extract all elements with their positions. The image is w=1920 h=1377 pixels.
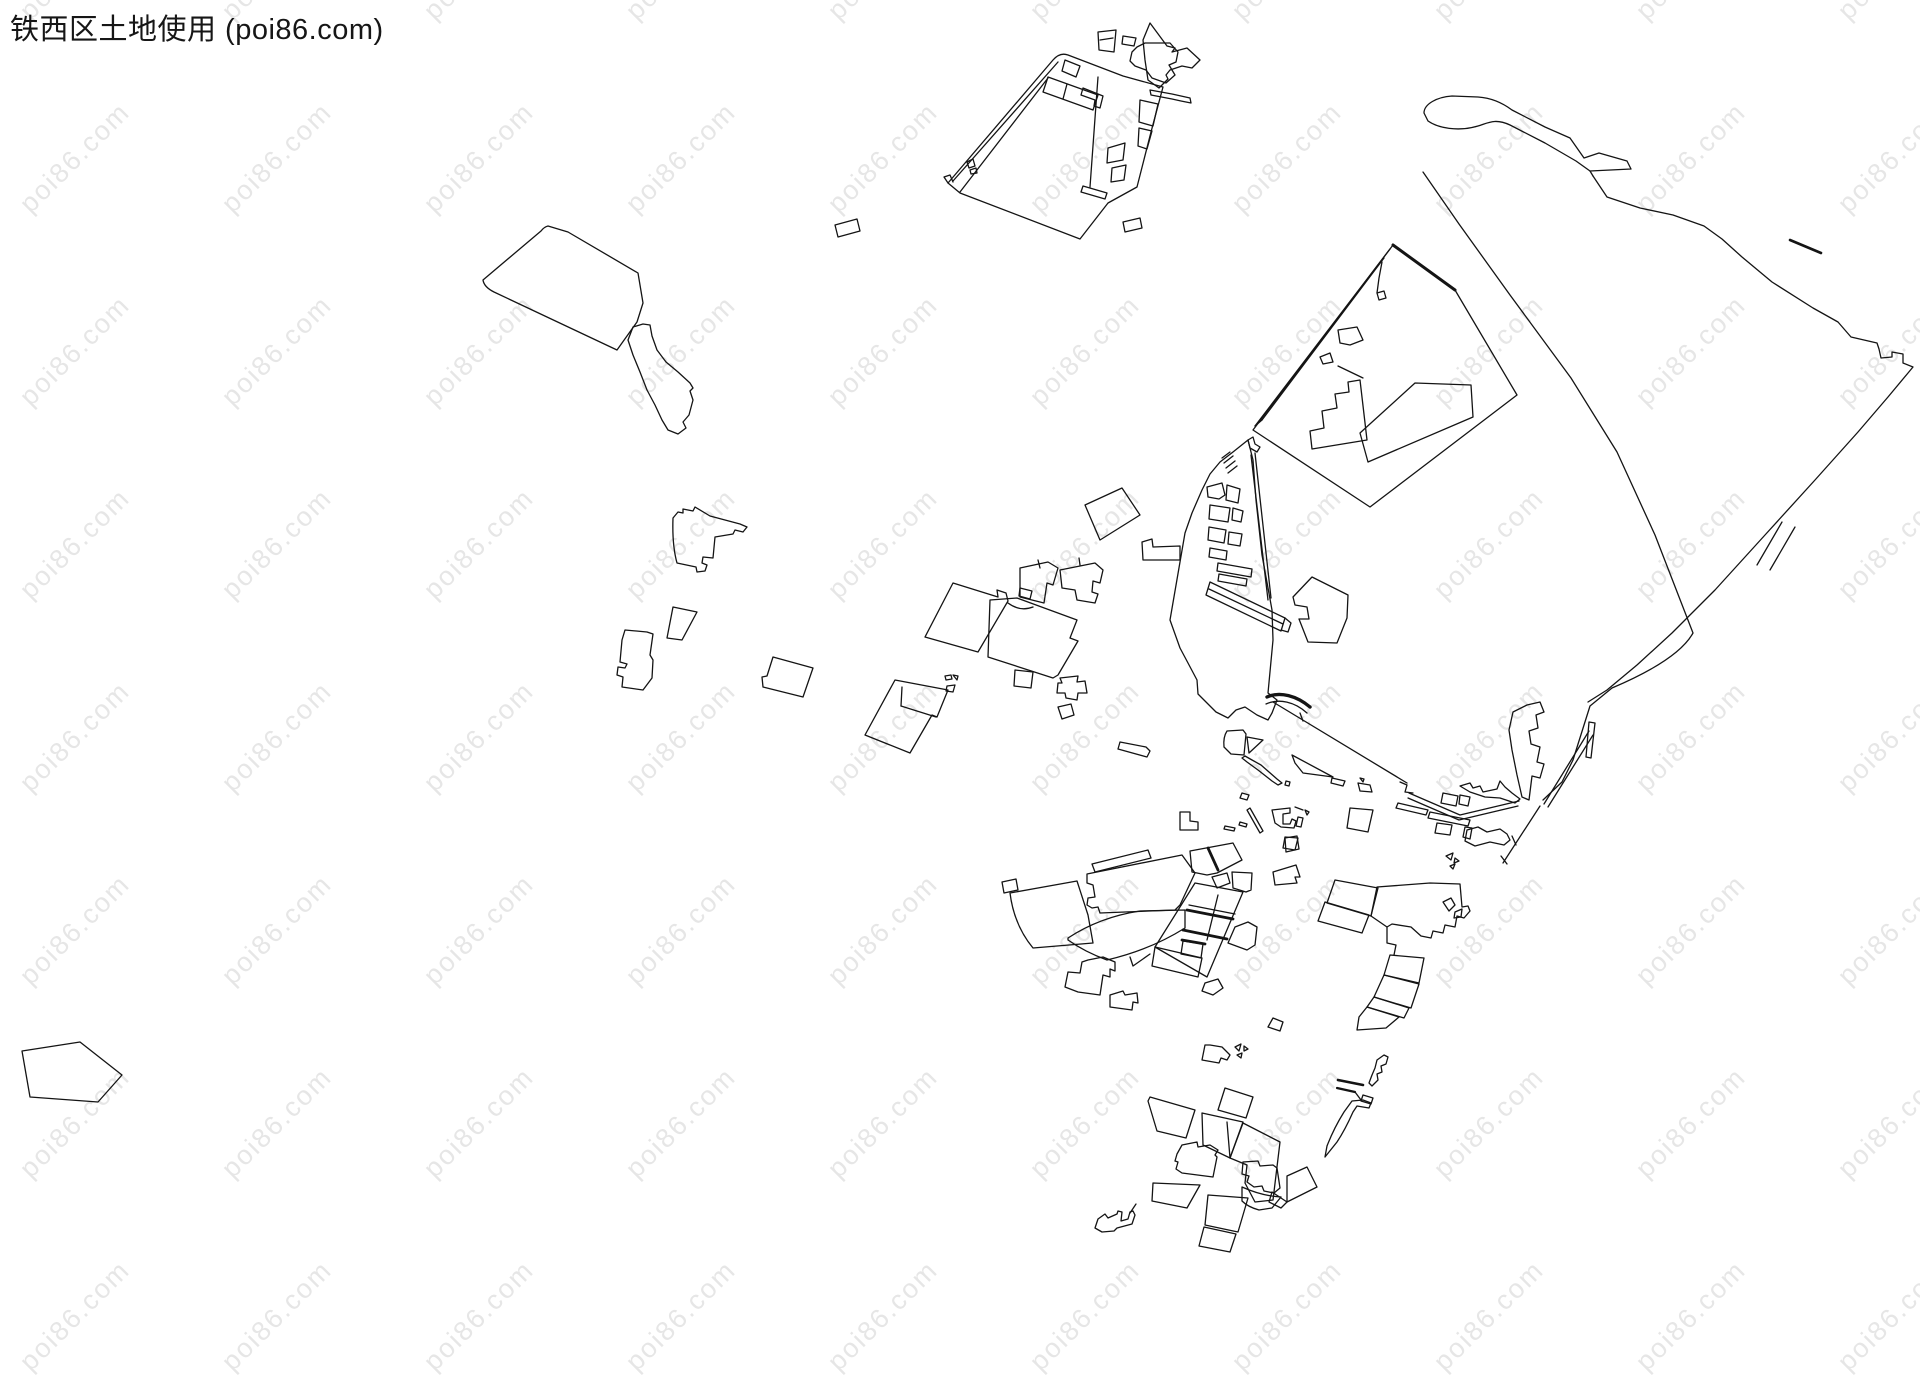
mid-cluster-slash bbox=[1295, 807, 1303, 810]
central-dark-band bbox=[1267, 694, 1310, 707]
region-neck bbox=[1590, 171, 1593, 176]
right-slash-1 bbox=[1757, 522, 1782, 565]
bl-small-diamond bbox=[1268, 1018, 1283, 1031]
rc-connector bbox=[1387, 927, 1396, 955]
center-top-quad-2 bbox=[1060, 563, 1103, 603]
central-room-d bbox=[1232, 508, 1243, 522]
small-quad-left bbox=[835, 219, 860, 237]
bl-pentagon bbox=[1228, 922, 1257, 950]
grid-block bbox=[1155, 883, 1243, 977]
top-complex-step bbox=[1081, 88, 1103, 108]
watermark-text: poi86.com bbox=[620, 1255, 743, 1377]
left-big-polygon bbox=[483, 226, 643, 350]
mid-triangle-bits bbox=[1331, 778, 1345, 786]
central-room-g bbox=[1209, 548, 1227, 560]
road-steps bbox=[1400, 782, 1413, 793]
road-long-line bbox=[1273, 702, 1407, 783]
central-room-c bbox=[1209, 505, 1230, 522]
bc-sliver bbox=[1227, 1122, 1230, 1158]
watermark-text: poi86.com bbox=[418, 1255, 541, 1377]
mid-sliver bbox=[1247, 808, 1263, 833]
center-dash-1 bbox=[945, 675, 952, 680]
bl-small-quad bbox=[1202, 979, 1223, 995]
top-quad-f2 bbox=[1138, 128, 1152, 149]
center-top-quad-1 bbox=[1020, 562, 1058, 603]
center-dash-2 bbox=[953, 675, 958, 680]
bc-top-square bbox=[1218, 1088, 1253, 1118]
rc-chain-3 bbox=[1357, 1007, 1399, 1030]
center-c-shape bbox=[1057, 676, 1087, 700]
bc-pentagon bbox=[1175, 1142, 1218, 1177]
bc-road-bold-1 bbox=[1338, 1080, 1363, 1085]
bc-seven-wedge bbox=[1325, 1100, 1371, 1157]
bl-cluster-rect bbox=[1002, 879, 1018, 893]
top-tip-small-quad bbox=[1122, 36, 1136, 46]
watermark-text: poi86.com bbox=[1832, 1255, 1920, 1377]
mid-triangle-inner bbox=[1247, 737, 1263, 753]
small-cluster-c bbox=[1320, 353, 1333, 364]
hub-strip bbox=[1509, 702, 1544, 800]
mid-dot bbox=[1285, 781, 1290, 786]
rc-chain-1 bbox=[1374, 975, 1419, 1008]
top-complex-inner-line bbox=[960, 78, 1048, 192]
bc-road-bold-2 bbox=[1337, 1088, 1355, 1092]
central-room-e bbox=[1208, 527, 1226, 543]
hub-road-ssw bbox=[1503, 806, 1540, 863]
central-hatch-3 bbox=[1226, 461, 1235, 468]
central-complex-outline bbox=[1170, 440, 1277, 720]
bc-bottom-quad bbox=[1152, 1183, 1200, 1208]
rc-arrow-2 bbox=[1454, 858, 1459, 863]
bl-notched bbox=[1065, 957, 1115, 995]
grid-row-bold-2 bbox=[1183, 930, 1227, 939]
bc-road-thin bbox=[1355, 1092, 1361, 1100]
grid-divider bbox=[1207, 895, 1218, 940]
bl-leaf-step bbox=[1130, 954, 1150, 966]
center-tilted-quad bbox=[1085, 488, 1140, 540]
small-trapezoid bbox=[667, 607, 697, 640]
subdivided-quad-line2 bbox=[901, 706, 936, 717]
left-boot-polygon bbox=[628, 324, 693, 434]
watermark-text: poi86.com bbox=[1630, 1255, 1753, 1377]
top-tip-quad bbox=[1098, 30, 1116, 52]
hook-blob bbox=[1424, 96, 1631, 171]
wing-line-2 bbox=[1262, 258, 1384, 420]
top-tip-irregular bbox=[1130, 43, 1178, 83]
funnel-parcel bbox=[673, 507, 747, 572]
hub-road-nne-2 bbox=[1548, 735, 1593, 807]
bottom-left-polygon bbox=[22, 1042, 122, 1102]
center-pentagon bbox=[988, 598, 1078, 678]
bc-squiggle bbox=[1369, 1055, 1388, 1086]
watermark-text: poi86.com bbox=[216, 1255, 339, 1377]
central-sliver-2 bbox=[1255, 453, 1271, 598]
hub-small-poly-1 bbox=[1443, 898, 1455, 911]
bl-cluster-block bbox=[1087, 855, 1195, 913]
top-flag bbox=[1150, 90, 1191, 103]
top-complex-band-divider bbox=[1063, 84, 1067, 99]
central-room-b bbox=[1226, 485, 1240, 503]
small-quad-below-complex bbox=[1123, 218, 1142, 232]
page-title: 铁西区土地使用 (poi86.com) bbox=[10, 6, 384, 48]
hub-road-nne-1 bbox=[1544, 731, 1589, 804]
small-cluster-b bbox=[1377, 291, 1386, 300]
bl-tiny-mark-2 bbox=[1244, 1046, 1248, 1051]
region-right-boundary bbox=[1588, 176, 1913, 702]
mid-dash-2 bbox=[1239, 822, 1247, 827]
notched-pentagon bbox=[1293, 577, 1348, 643]
staircase-parcel bbox=[1310, 380, 1367, 449]
mid-pencil bbox=[1242, 756, 1282, 785]
top-complex-inner-strip bbox=[953, 62, 1058, 181]
grid-top-quad-bold bbox=[1208, 848, 1218, 870]
right-slash-2 bbox=[1770, 527, 1795, 570]
top-complex-outline bbox=[948, 54, 1163, 239]
mid-cluster-vbar bbox=[1296, 817, 1303, 827]
bl-bottom-poly bbox=[1202, 1045, 1230, 1063]
watermark-text: poi86.com bbox=[14, 1255, 137, 1377]
grid-row-bold-1 bbox=[1187, 910, 1233, 919]
top-complex-bottom-bar bbox=[1081, 186, 1107, 199]
road-rect-1 bbox=[1441, 793, 1458, 806]
bl-small-bar bbox=[1110, 991, 1138, 1010]
mid-cluster-tiny bbox=[1305, 810, 1309, 815]
mid-quad-c bbox=[1358, 783, 1372, 792]
grid-bottom-strip bbox=[1152, 947, 1202, 977]
road-tilted-quad bbox=[1435, 823, 1452, 835]
central-hatch-2 bbox=[1224, 456, 1233, 463]
big-parallelogram-bold-edge bbox=[1393, 245, 1455, 290]
rc-mid-quad bbox=[1384, 955, 1424, 983]
bl-tiny-mark-3 bbox=[1237, 1053, 1242, 1058]
small-cluster-slash bbox=[1338, 366, 1363, 378]
center-pentagon-arc bbox=[1008, 603, 1033, 609]
rc-arrow-3 bbox=[1450, 864, 1455, 869]
mid-cluster-e bbox=[1272, 808, 1296, 828]
center-small-square bbox=[1014, 670, 1033, 688]
watermark-text: poi86.com bbox=[1226, 1255, 1349, 1377]
rc-big-block bbox=[1371, 883, 1470, 938]
small-cluster-a bbox=[1338, 327, 1363, 345]
grid-side-poly-2 bbox=[1232, 872, 1252, 892]
bc-triangle bbox=[1202, 1113, 1243, 1158]
top-quad-f1 bbox=[1139, 100, 1158, 126]
center-diamond bbox=[1058, 704, 1074, 719]
small-boot bbox=[617, 630, 653, 690]
mid-blob bbox=[1224, 730, 1246, 755]
top-complex-band-rect2 bbox=[1111, 165, 1126, 182]
grid-top-quad bbox=[1190, 843, 1242, 875]
watermark-text: poi86.com bbox=[1428, 1255, 1551, 1377]
subdivided-quad-line1 bbox=[901, 687, 902, 706]
road-rect-2 bbox=[1459, 795, 1470, 806]
watermark-text: poi86.com bbox=[822, 1255, 945, 1377]
mid-quad-c-mark bbox=[1360, 778, 1364, 782]
mid-dash-1 bbox=[1224, 826, 1235, 831]
bc-left-quad bbox=[1148, 1097, 1195, 1138]
top-complex-band-rect1 bbox=[1107, 143, 1125, 163]
bl-cluster-bar bbox=[1092, 850, 1151, 872]
inner-pentagon bbox=[1360, 383, 1473, 462]
bc-plane-shape bbox=[1095, 1211, 1135, 1232]
bl-leaf bbox=[1068, 910, 1185, 960]
top-tip-quad-line bbox=[1100, 38, 1113, 40]
bl-cluster-quad bbox=[1010, 881, 1093, 948]
wing-line-1 bbox=[1255, 249, 1390, 426]
hub-road-spur bbox=[1512, 836, 1516, 845]
bold-segment bbox=[1790, 240, 1821, 253]
top-complex-band bbox=[1043, 77, 1098, 110]
bc-big-irregular bbox=[1230, 1123, 1280, 1202]
center-top-line-2 bbox=[1079, 558, 1080, 565]
top-complex-small-rect bbox=[1062, 60, 1080, 77]
watermark-text: poi86.com bbox=[1024, 1255, 1147, 1377]
bc-right-quad bbox=[1287, 1167, 1317, 1202]
central-room-a bbox=[1207, 483, 1225, 499]
mid-triangle-b bbox=[1292, 755, 1333, 777]
central-sliver-1 bbox=[1251, 455, 1268, 600]
mid-l-shape bbox=[1180, 812, 1198, 830]
bl-tilted-bar bbox=[1273, 865, 1300, 885]
rc-chain-2 bbox=[1367, 997, 1409, 1018]
rc-parallelogram-2 bbox=[1318, 902, 1369, 933]
central-hatch-4 bbox=[1228, 466, 1237, 473]
land-use-map bbox=[0, 0, 1920, 1262]
central-room-f bbox=[1228, 532, 1242, 546]
mid-square-d bbox=[1240, 793, 1249, 800]
top-complex-mark2 bbox=[970, 168, 977, 174]
bl-tiny-mark-1 bbox=[1235, 1044, 1241, 1051]
mid-quad-f bbox=[1347, 808, 1373, 832]
mid-square bbox=[762, 657, 813, 697]
center-square bbox=[925, 583, 1008, 652]
region-left-boundary bbox=[1423, 172, 1693, 800]
central-left-flag bbox=[1142, 539, 1180, 560]
rc-arrow-1 bbox=[1446, 853, 1453, 860]
center-thin-bar bbox=[1118, 742, 1150, 757]
grid-side-poly-1 bbox=[1212, 873, 1230, 888]
